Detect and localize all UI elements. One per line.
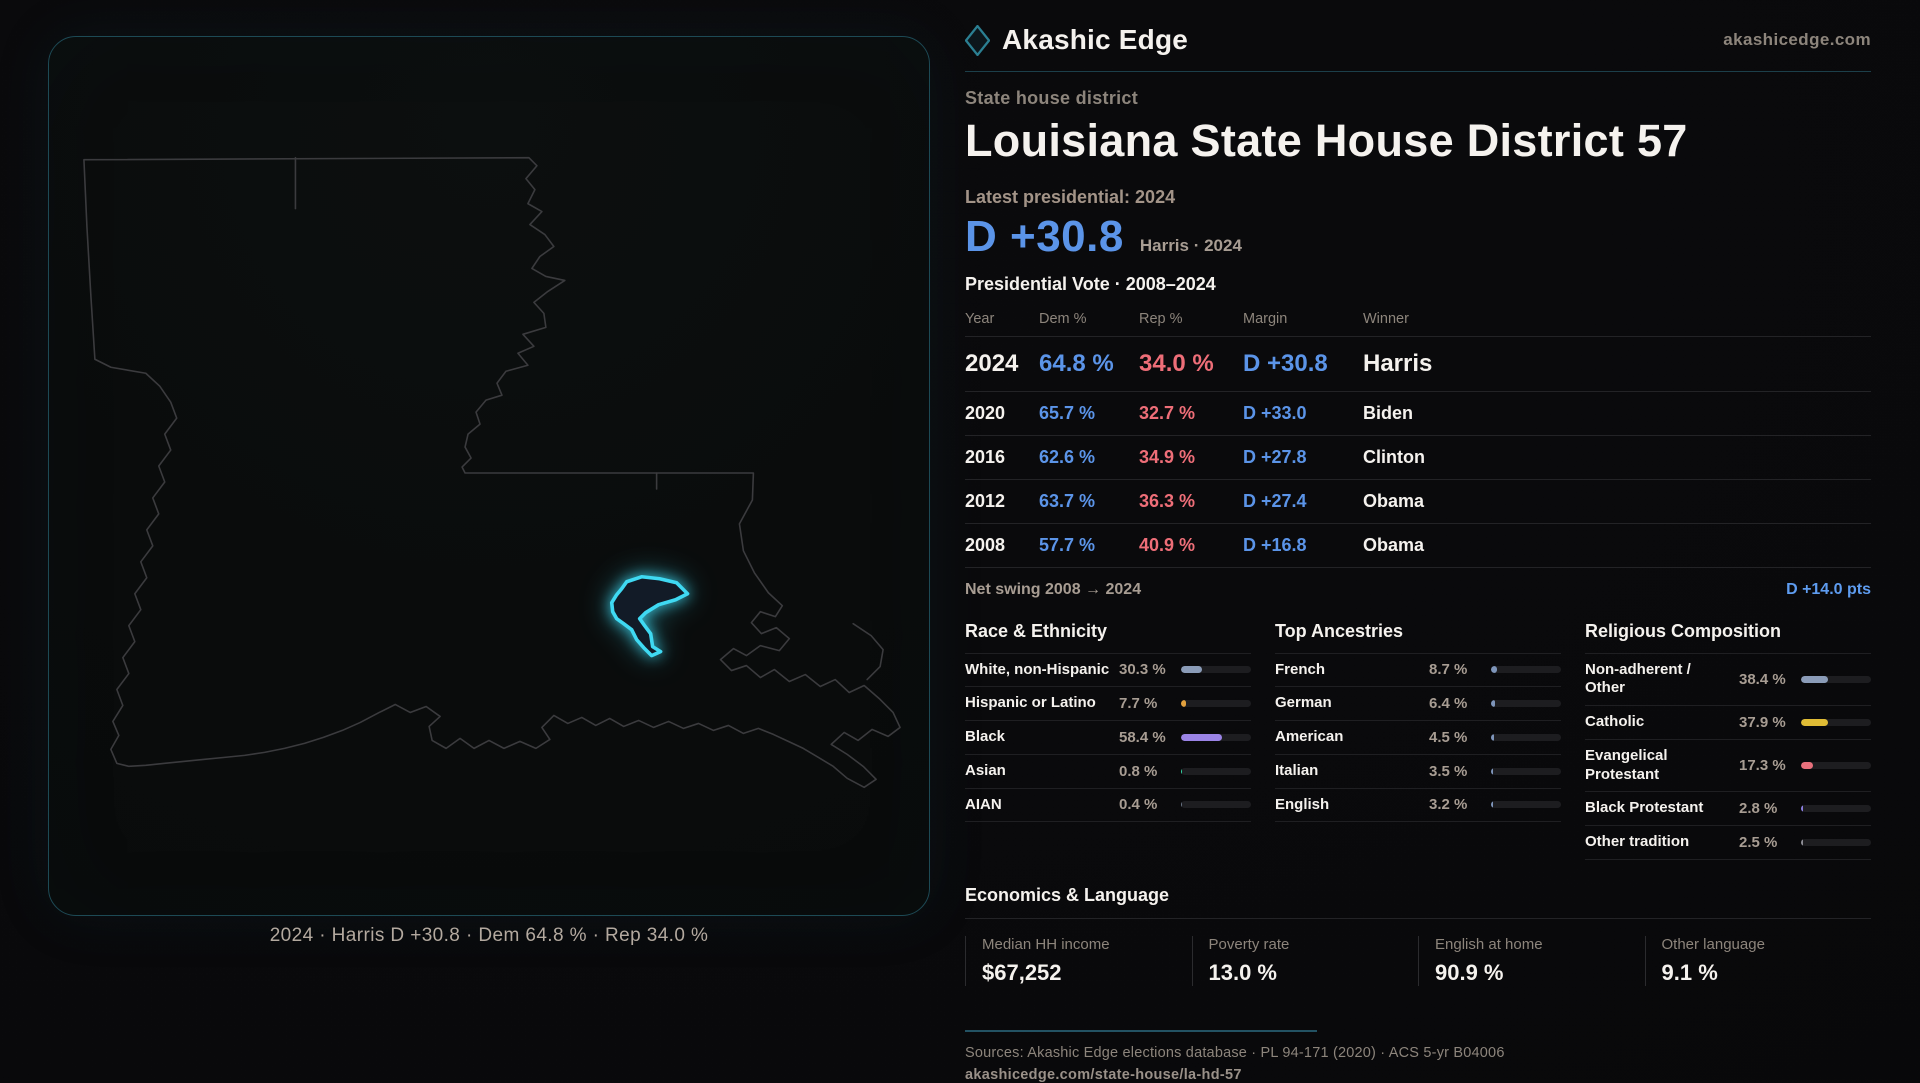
economic-stat-label: English at home bbox=[1435, 936, 1645, 953]
demographic-value: 4.5 % bbox=[1429, 729, 1491, 746]
economic-stat-value: 9.1 % bbox=[1662, 960, 1872, 986]
demographic-row: Italian3.5 % bbox=[1275, 755, 1561, 789]
demographics-column: Race & EthnicityWhite, non-Hispanic30.3 … bbox=[965, 621, 1251, 860]
demographic-row: Asian0.8 % bbox=[965, 755, 1251, 789]
kicker: State house district bbox=[965, 88, 1871, 109]
demographics-column: Religious CompositionNon-adherent / Othe… bbox=[1585, 621, 1871, 860]
footer: Sources: Akashic Edge elections database… bbox=[965, 1030, 1871, 1083]
demographic-label: Hispanic or Latino bbox=[965, 694, 1119, 713]
net-swing-label: Net swing 2008 → 2024 bbox=[965, 581, 1141, 599]
latest-margin-value: D +30.8 bbox=[965, 212, 1124, 262]
demographics-column-title: Religious Composition bbox=[1585, 621, 1871, 642]
demographic-value: 2.5 % bbox=[1739, 834, 1801, 851]
demographic-value: 2.8 % bbox=[1739, 800, 1801, 817]
demographic-value: 58.4 % bbox=[1119, 729, 1181, 746]
vote-table-cell: 2012 bbox=[965, 491, 1039, 512]
louisiana-map bbox=[49, 37, 929, 915]
demographic-bar-fill bbox=[1801, 839, 1803, 846]
demographic-row: White, non-Hispanic30.3 % bbox=[965, 654, 1251, 688]
demographic-value: 0.8 % bbox=[1119, 763, 1181, 780]
economics-section: Economics & Language Median HH income$67… bbox=[965, 885, 1871, 986]
demographic-label: Black bbox=[965, 728, 1119, 747]
economic-stat: Median HH income$67,252 bbox=[965, 936, 1192, 986]
demographic-bar bbox=[1801, 762, 1871, 769]
latest-margin-row: D +30.8 Harris · 2024 bbox=[965, 212, 1871, 262]
vote-table-cell: 2016 bbox=[965, 447, 1039, 468]
demographic-label: English bbox=[1275, 796, 1429, 815]
demographic-value: 0.4 % bbox=[1119, 796, 1181, 813]
vote-table-cell: D +33.0 bbox=[1243, 403, 1363, 424]
vote-table-cell: Obama bbox=[1363, 535, 1871, 556]
vote-table-cell: Biden bbox=[1363, 403, 1871, 424]
vote-table-row: 201263.7 %36.3 %D +27.4Obama bbox=[965, 480, 1871, 524]
demographic-row: Black Protestant2.8 % bbox=[1585, 792, 1871, 826]
vote-table-header-cell: Winner bbox=[1363, 311, 1871, 327]
vote-table-header-cell: Year bbox=[965, 311, 1039, 327]
demographic-bar bbox=[1181, 734, 1251, 741]
demographic-label: Italian bbox=[1275, 762, 1429, 781]
vote-table-cell: 63.7 % bbox=[1039, 491, 1139, 512]
demographic-label: AIAN bbox=[965, 796, 1119, 815]
demographic-row: Evangelical Protestant17.3 % bbox=[1585, 740, 1871, 793]
demographic-bar-fill bbox=[1181, 700, 1186, 707]
vote-table-row: 202065.7 %32.7 %D +33.0Biden bbox=[965, 392, 1871, 436]
demographics-column-title: Race & Ethnicity bbox=[965, 621, 1251, 642]
demographic-bar-fill bbox=[1491, 700, 1495, 707]
economic-stat-label: Median HH income bbox=[982, 936, 1192, 953]
net-swing-row: Net swing 2008 → 2024 D +14.0 pts bbox=[965, 581, 1871, 599]
demographic-bar-fill bbox=[1491, 768, 1493, 775]
demographic-value: 7.7 % bbox=[1119, 695, 1181, 712]
demographic-bar-fill bbox=[1801, 805, 1803, 812]
district-map-panel bbox=[48, 36, 930, 916]
economic-stat-value: 13.0 % bbox=[1209, 960, 1419, 986]
vote-table-cell: 2008 bbox=[965, 535, 1039, 556]
vote-table-cell: 32.7 % bbox=[1139, 403, 1243, 424]
demographics-column: Top AncestriesFrench8.7 %German6.4 %Amer… bbox=[1275, 621, 1561, 860]
vote-table-header-cell: Rep % bbox=[1139, 311, 1243, 327]
demographic-value: 8.7 % bbox=[1429, 661, 1491, 678]
demographic-row: Black58.4 % bbox=[965, 721, 1251, 755]
demographic-label: White, non-Hispanic bbox=[965, 661, 1119, 680]
district-57-shape[interactable] bbox=[612, 577, 688, 656]
vote-table-cell: D +27.8 bbox=[1243, 447, 1363, 468]
sources-line: Sources: Akashic Edge elections database… bbox=[965, 1045, 1871, 1061]
demographic-value: 6.4 % bbox=[1429, 695, 1491, 712]
demographic-row: German6.4 % bbox=[1275, 687, 1561, 721]
vote-table-row: 202464.8 %34.0 %D +30.8Harris bbox=[965, 337, 1871, 392]
brand: Akashic Edge bbox=[965, 24, 1188, 56]
demographics-rows: White, non-Hispanic30.3 %Hispanic or Lat… bbox=[965, 653, 1251, 823]
demographic-label: French bbox=[1275, 661, 1429, 680]
vote-table-header: YearDem %Rep %MarginWinner bbox=[965, 303, 1871, 337]
demographic-bar bbox=[1181, 666, 1251, 673]
demographic-bar bbox=[1491, 768, 1561, 775]
demographic-value: 30.3 % bbox=[1119, 661, 1181, 678]
economics-title: Economics & Language bbox=[965, 885, 1871, 919]
demographic-row: French8.7 % bbox=[1275, 654, 1561, 688]
vote-table-cell: 36.3 % bbox=[1139, 491, 1243, 512]
demographic-row: Catholic37.9 % bbox=[1585, 706, 1871, 740]
demographic-label: Asian bbox=[965, 762, 1119, 781]
demographic-bar bbox=[1181, 768, 1251, 775]
vote-table-cell: Clinton bbox=[1363, 447, 1871, 468]
louisiana-outline bbox=[84, 158, 900, 788]
demographic-row: American4.5 % bbox=[1275, 721, 1561, 755]
demographic-row: English3.2 % bbox=[1275, 789, 1561, 823]
vote-table-cell: Harris bbox=[1363, 350, 1871, 378]
vote-table-header-cell: Margin bbox=[1243, 311, 1363, 327]
demographic-row: AIAN0.4 % bbox=[965, 789, 1251, 823]
demographic-bar-fill bbox=[1181, 768, 1182, 775]
brand-name: Akashic Edge bbox=[1002, 24, 1188, 56]
permalink: akashicedge.com/state-house/la-hd-57 bbox=[965, 1067, 1871, 1083]
info-panel: Akashic Edge akashicedge.com State house… bbox=[965, 24, 1871, 1083]
economics-stats: Median HH income$67,252Poverty rate13.0 … bbox=[965, 936, 1871, 986]
vote-table-cell: 64.8 % bbox=[1039, 350, 1139, 378]
vote-table-cell: 40.9 % bbox=[1139, 535, 1243, 556]
demographic-label: German bbox=[1275, 694, 1429, 713]
latest-margin-sub: Harris · 2024 bbox=[1140, 236, 1242, 256]
economic-stat-value: $67,252 bbox=[982, 960, 1192, 986]
demographic-bar-fill bbox=[1181, 734, 1222, 741]
demographic-row: Non-adherent / Other38.4 % bbox=[1585, 654, 1871, 707]
vote-table: YearDem %Rep %MarginWinner202464.8 %34.0… bbox=[965, 303, 1871, 568]
economic-stat-label: Other language bbox=[1662, 936, 1872, 953]
net-swing-value: D +14.0 pts bbox=[1786, 581, 1871, 599]
vote-table-cell: D +30.8 bbox=[1243, 350, 1363, 378]
vote-table-row: 201662.6 %34.9 %D +27.8Clinton bbox=[965, 436, 1871, 480]
demographic-bar-fill bbox=[1491, 801, 1493, 808]
economic-stat-label: Poverty rate bbox=[1209, 936, 1419, 953]
vote-table-cell: 65.7 % bbox=[1039, 403, 1139, 424]
vote-table-cell: Obama bbox=[1363, 491, 1871, 512]
vote-table-cell: D +16.8 bbox=[1243, 535, 1363, 556]
economic-stat: Other language9.1 % bbox=[1645, 936, 1872, 986]
demographic-label: American bbox=[1275, 728, 1429, 747]
chandeleur-islands-outline bbox=[853, 624, 883, 680]
demographics-rows: Non-adherent / Other38.4 %Catholic37.9 %… bbox=[1585, 653, 1871, 860]
demographic-value: 38.4 % bbox=[1739, 671, 1801, 688]
demographics-grid: Race & EthnicityWhite, non-Hispanic30.3 … bbox=[965, 621, 1871, 860]
demographic-bar-fill bbox=[1801, 762, 1813, 769]
demographic-bar bbox=[1491, 734, 1561, 741]
demographic-bar bbox=[1181, 700, 1251, 707]
demographic-value: 3.5 % bbox=[1429, 763, 1491, 780]
footer-divider bbox=[965, 1030, 1317, 1032]
demographic-bar bbox=[1801, 719, 1871, 726]
demographic-label: Black Protestant bbox=[1585, 799, 1739, 818]
vote-table-cell: 34.0 % bbox=[1139, 350, 1243, 378]
demographic-bar bbox=[1491, 801, 1561, 808]
demographic-bar bbox=[1801, 839, 1871, 846]
demographic-bar-fill bbox=[1801, 676, 1828, 683]
demographic-bar bbox=[1181, 801, 1251, 808]
demographic-bar-fill bbox=[1491, 666, 1497, 673]
demographic-bar-fill bbox=[1181, 666, 1202, 673]
demographic-bar bbox=[1491, 666, 1561, 673]
demographic-bar-fill bbox=[1181, 801, 1182, 808]
demographic-bar bbox=[1801, 676, 1871, 683]
demographic-value: 37.9 % bbox=[1739, 714, 1801, 731]
site-link[interactable]: akashicedge.com bbox=[1723, 30, 1871, 50]
vote-table-cell: 2024 bbox=[965, 350, 1039, 378]
diamond-logo-icon bbox=[965, 25, 990, 56]
demographic-value: 17.3 % bbox=[1739, 757, 1801, 774]
demographic-row: Other tradition2.5 % bbox=[1585, 826, 1871, 860]
demographic-bar-fill bbox=[1491, 734, 1494, 741]
vote-table-cell: 62.6 % bbox=[1039, 447, 1139, 468]
demographic-label: Non-adherent / Other bbox=[1585, 661, 1739, 699]
brand-header: Akashic Edge akashicedge.com bbox=[965, 24, 1871, 72]
economic-stat-value: 90.9 % bbox=[1435, 960, 1645, 986]
demographic-value: 3.2 % bbox=[1429, 796, 1491, 813]
demographic-bar bbox=[1801, 805, 1871, 812]
demographic-label: Other tradition bbox=[1585, 833, 1739, 852]
latest-presidential-label: Latest presidential: 2024 bbox=[965, 187, 1871, 208]
vote-table-cell: 2020 bbox=[965, 403, 1039, 424]
vote-table-cell: D +27.4 bbox=[1243, 491, 1363, 512]
demographic-bar bbox=[1491, 700, 1561, 707]
demographics-column-title: Top Ancestries bbox=[1275, 621, 1561, 642]
map-caption: 2024 · Harris D +30.8 · Dem 64.8 % · Rep… bbox=[48, 925, 930, 947]
economic-stat: English at home90.9 % bbox=[1418, 936, 1645, 986]
demographic-label: Evangelical Protestant bbox=[1585, 747, 1739, 785]
economic-stat: Poverty rate13.0 % bbox=[1192, 936, 1419, 986]
vote-table-row: 200857.7 %40.9 %D +16.8Obama bbox=[965, 524, 1871, 568]
demographic-row: Hispanic or Latino7.7 % bbox=[965, 687, 1251, 721]
demographic-bar-fill bbox=[1801, 719, 1828, 726]
vote-table-cell: 34.9 % bbox=[1139, 447, 1243, 468]
demographic-label: Catholic bbox=[1585, 713, 1739, 732]
vote-table-header-cell: Dem % bbox=[1039, 311, 1139, 327]
vote-table-title: Presidential Vote · 2008–2024 bbox=[965, 274, 1871, 295]
vote-table-cell: 57.7 % bbox=[1039, 535, 1139, 556]
page-title: Louisiana State House District 57 bbox=[965, 116, 1871, 166]
demographics-rows: French8.7 %German6.4 %American4.5 %Itali… bbox=[1275, 653, 1561, 823]
